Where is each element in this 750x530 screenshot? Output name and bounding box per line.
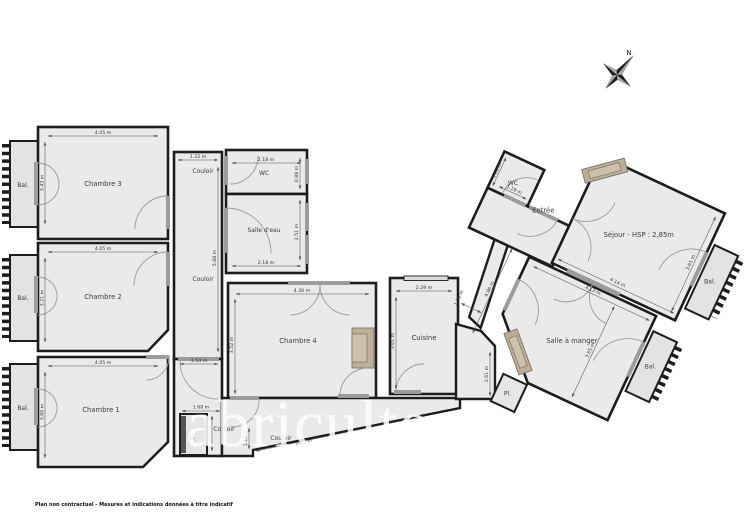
chambre-2-label: Chambre 2 [84,293,121,301]
windows [305,159,448,281]
chambre-4-width-dim: 4.30 m [294,288,311,294]
chambre-4-height-dim: 3.52 m [229,336,235,353]
salle-eau-height-dim: 2.51 m [294,223,300,240]
floor-plan-page: 4.14 m 4.13 m 3.61 m 3.65 m 4.86 m 1.29 … [0,0,750,530]
chambre-3-label: Chambre 3 [84,180,121,188]
chambre-1-height-dim: 3.06 m [40,403,46,420]
footer-disclaimer: Plan non contractuel - Mesures et indica… [35,501,234,508]
salle-a-manger-label: Salle à manger [546,337,598,345]
chambre-4-label: Chambre 4 [279,337,316,345]
couloir-length-dim: 5.88 m [212,249,218,266]
balcony-1-label: Bal. [17,405,28,412]
balcony-salle-a-manger-label: Bal. [645,363,656,370]
cuisine-width-dim: 2.29 m [416,285,433,291]
wc-right-label: WC [508,180,518,187]
couloir-width-dim: 1.22 m [190,154,207,160]
floor-plan-svg: 4.14 m 4.13 m 3.61 m 3.65 m 4.86 m 1.29 … [0,0,750,530]
balcony-sejour-label: Bal. [704,279,715,286]
entree-label: Entrée [532,207,554,215]
wc-left-label: WC [259,170,269,177]
watermark: abriculteurs [186,387,514,461]
balcony-3-label: Bal. [17,182,28,189]
cuisine-label: Cuisine [412,334,437,342]
wc-left-height-dim: 0.88 m [294,165,300,182]
couloir-top-label: Couloir [192,168,214,175]
fireplace-chambre-4 [352,328,374,368]
cuisine-height-dim: 3.01 m [390,332,396,349]
salle-eau-width-dim: 2.18 m [258,260,275,266]
chambre-1-width-dim: 4.05 m [95,360,112,366]
chambre-3-width-dim: 4.05 m [95,130,112,136]
north-compass: N [592,44,648,101]
balcony-2-label: Bal. [17,295,28,302]
degagement-dim: 2.61 m [484,365,490,382]
chambre-2-width-dim: 4.05 m [95,246,112,252]
chambre-2-height-dim: 3.21 m [40,289,46,306]
kitchen-window [404,276,448,281]
sejour-label: Séjour - HSP : 2,85m [604,231,675,239]
chambre-3-height-dim: 3.43 m [40,174,46,191]
chambre-1-label: Chambre 1 [82,406,119,414]
couloir-mid-label: Couloir [192,276,214,283]
salle-eau-label: Salle d'eau [247,227,280,234]
compass-star-icon [592,44,648,101]
door-width-dim: 1.54 m [191,358,208,364]
wc-left-width-dim: 2.18 m [258,157,275,163]
north-label: N [626,49,631,57]
